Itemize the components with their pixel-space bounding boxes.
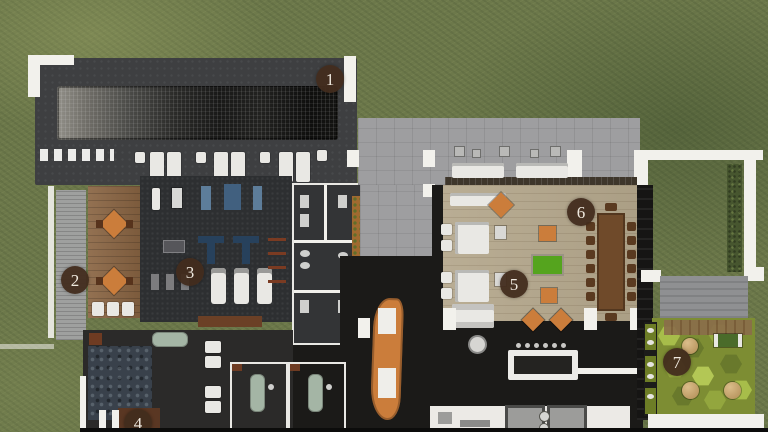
dining-chair bbox=[627, 222, 636, 231]
bath-fixture bbox=[338, 195, 347, 208]
walkway-planter bbox=[352, 196, 360, 258]
desk-counter bbox=[378, 308, 396, 334]
weight-rack bbox=[163, 240, 185, 253]
gym-bench bbox=[152, 188, 160, 210]
lounge-table bbox=[541, 288, 557, 303]
planter-plant bbox=[647, 394, 654, 399]
dining-chair bbox=[627, 292, 636, 301]
locker-partition bbox=[324, 185, 327, 240]
cable-machine-bar bbox=[198, 236, 224, 243]
floor-plan-scene: 1 2 3 4 5 6 7 bbox=[0, 0, 768, 432]
wall-segment bbox=[578, 368, 640, 374]
spa-bench bbox=[205, 356, 221, 368]
rig-bar bbox=[268, 266, 286, 269]
terrace-planter-strip bbox=[56, 190, 86, 340]
treadmill bbox=[234, 268, 249, 304]
gym-bench-wood bbox=[198, 316, 262, 327]
concrete-pad bbox=[660, 276, 748, 318]
wall-corner-top-left-h bbox=[28, 55, 74, 65]
bar-counter bbox=[508, 350, 578, 380]
rig-bar bbox=[268, 238, 286, 241]
column-block bbox=[423, 150, 435, 167]
gym-machine bbox=[253, 186, 262, 210]
rig-bar bbox=[268, 280, 286, 283]
billiard-table bbox=[531, 254, 564, 276]
garden-planter-cell bbox=[645, 388, 656, 414]
hex-paver bbox=[720, 354, 742, 374]
therapist-stool bbox=[326, 384, 332, 390]
room-marker-7: 7 bbox=[663, 348, 691, 376]
planter-plant bbox=[647, 374, 654, 379]
column-block bbox=[347, 150, 359, 167]
treadmill bbox=[211, 268, 226, 304]
terrace-chair bbox=[126, 220, 133, 228]
therapist-stool bbox=[268, 384, 274, 390]
armchair bbox=[441, 240, 452, 251]
terrace-low-wall bbox=[0, 344, 54, 349]
gym-machine bbox=[224, 184, 241, 210]
dining-chair bbox=[605, 203, 617, 211]
side-table bbox=[495, 226, 506, 239]
planter-plant bbox=[647, 362, 654, 367]
sofa bbox=[455, 270, 489, 302]
outdoor-sofa bbox=[452, 163, 504, 178]
spa-cabinet bbox=[89, 333, 102, 345]
deck-frame bbox=[455, 147, 464, 156]
pad-corner-block bbox=[748, 267, 764, 281]
room-marker-5: 5 bbox=[500, 270, 528, 298]
room-marker-2: 2 bbox=[61, 266, 89, 294]
garden-pouf bbox=[724, 382, 741, 399]
pool-lounger bbox=[296, 152, 310, 182]
pool-deck-tile-strip bbox=[40, 149, 114, 161]
terrace-lounger bbox=[107, 302, 119, 316]
planter-plant bbox=[647, 340, 654, 345]
restroom-fixture bbox=[460, 420, 490, 427]
terrace-chair bbox=[96, 277, 103, 285]
dining-chair bbox=[586, 264, 595, 273]
spa-west-wall bbox=[80, 376, 86, 432]
bar-stool bbox=[561, 343, 566, 348]
bar-stool bbox=[525, 343, 530, 348]
terrace-lounger bbox=[122, 302, 134, 316]
door-block bbox=[260, 152, 270, 163]
bath-fixture bbox=[300, 250, 310, 257]
deck-frame bbox=[500, 147, 509, 156]
hex-paver bbox=[704, 390, 726, 410]
gym-machine bbox=[172, 188, 182, 208]
sofa bbox=[455, 222, 489, 254]
dining-chair bbox=[627, 250, 636, 259]
dining-chair bbox=[627, 278, 636, 287]
door-block bbox=[135, 152, 145, 163]
entry-walkway bbox=[360, 185, 432, 262]
garden-bench bbox=[714, 334, 742, 347]
dining-chair bbox=[586, 278, 595, 287]
massage-bed bbox=[308, 374, 323, 412]
wash-basin bbox=[540, 412, 549, 421]
swimming-pool-water bbox=[57, 86, 338, 140]
deck-frame bbox=[551, 147, 560, 156]
deck-frame bbox=[473, 150, 480, 157]
bar-stool bbox=[516, 343, 521, 348]
bath-fixture bbox=[300, 195, 309, 208]
dumbbell-stand bbox=[151, 274, 159, 290]
treadmill bbox=[257, 268, 272, 304]
courtyard-east-wall bbox=[744, 152, 756, 276]
console-table bbox=[452, 304, 494, 328]
door-block bbox=[196, 152, 206, 163]
wall-corner-top-right bbox=[344, 56, 356, 102]
outdoor-sofa bbox=[516, 163, 568, 178]
bar-stool bbox=[552, 343, 557, 348]
armchair bbox=[441, 224, 452, 235]
terrace-lounger bbox=[92, 302, 104, 316]
terrace-edge-wall bbox=[48, 186, 54, 338]
spa-doorway bbox=[99, 410, 106, 430]
terrace-chair bbox=[96, 220, 103, 228]
courtyard-hedge bbox=[727, 164, 742, 272]
dining-chair bbox=[627, 264, 636, 273]
dining-chair bbox=[586, 292, 595, 301]
armchair bbox=[441, 272, 452, 283]
room-marker-3: 3 bbox=[176, 258, 204, 286]
bottom-frame-edge bbox=[80, 428, 768, 432]
wall-segment bbox=[358, 318, 370, 338]
restroom-fixture bbox=[438, 412, 452, 424]
cable-machine-bar bbox=[233, 236, 259, 243]
door-block bbox=[317, 150, 327, 161]
dining-table bbox=[597, 213, 625, 311]
wall-segment bbox=[584, 308, 597, 330]
terrace-chair bbox=[126, 277, 133, 285]
room-accent bbox=[232, 364, 242, 371]
rig-bar bbox=[268, 252, 286, 255]
room-accent bbox=[290, 364, 300, 371]
spa-bench bbox=[205, 386, 221, 398]
dining-chair bbox=[605, 313, 617, 321]
desk-counter bbox=[378, 368, 396, 398]
spa-bench bbox=[205, 341, 221, 353]
massage-bed bbox=[250, 374, 265, 412]
bar-stool bbox=[534, 343, 539, 348]
terrace-wood-deck bbox=[88, 186, 140, 318]
bath-fixture bbox=[300, 300, 309, 313]
armchair bbox=[441, 288, 452, 299]
garden-wood-path bbox=[664, 320, 752, 335]
planter-plant bbox=[647, 328, 654, 333]
deck-frame bbox=[531, 150, 538, 157]
dumbbell-stand bbox=[166, 274, 174, 290]
dining-chair bbox=[627, 236, 636, 245]
bar-stool bbox=[543, 343, 548, 348]
wall-segment bbox=[443, 308, 456, 330]
pad-corner-block bbox=[641, 270, 661, 282]
gym-machine bbox=[201, 186, 211, 210]
garden-pouf bbox=[682, 382, 699, 399]
bath-fixture bbox=[300, 262, 310, 269]
spa-bench bbox=[205, 401, 221, 413]
locker-partition bbox=[294, 240, 360, 243]
room-marker-6: 6 bbox=[567, 198, 595, 226]
room-marker-1: 1 bbox=[316, 65, 344, 93]
spa-doorway bbox=[112, 410, 119, 430]
dining-chair bbox=[586, 236, 595, 245]
round-table bbox=[470, 337, 485, 352]
bath-fixture bbox=[300, 214, 309, 227]
spa-daybed bbox=[152, 332, 188, 347]
dining-chair bbox=[586, 250, 595, 259]
lounge-table bbox=[539, 226, 556, 241]
